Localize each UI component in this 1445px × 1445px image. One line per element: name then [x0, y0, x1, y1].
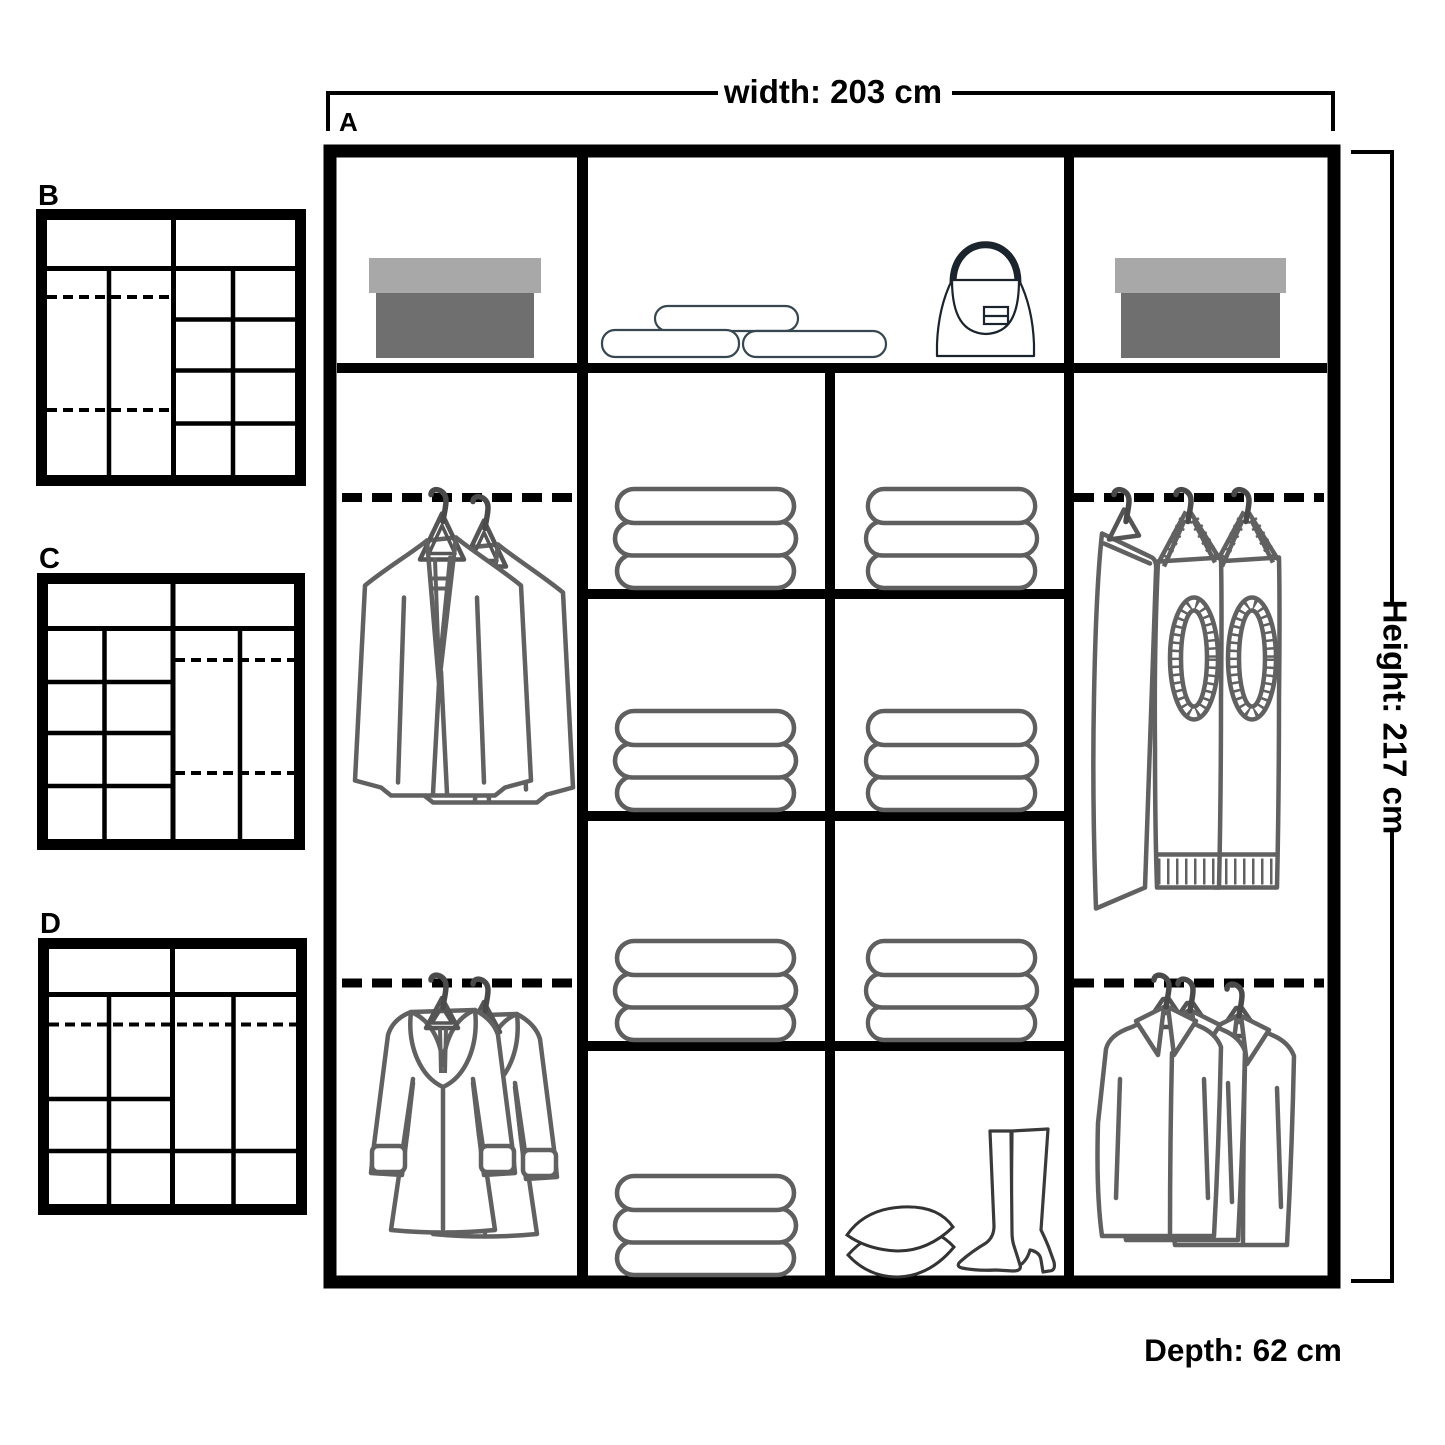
svg-text:Height: 217 cm: Height: 217 cm	[1376, 600, 1413, 835]
svg-text:Depth: 62 cm: Depth: 62 cm	[1144, 1332, 1342, 1368]
svg-text:C: C	[39, 543, 60, 575]
svg-text:A: A	[339, 107, 358, 137]
svg-text:D: D	[40, 908, 61, 940]
svg-text:B: B	[38, 180, 59, 212]
svg-text:width: 203 cm: width: 203 cm	[723, 73, 942, 110]
